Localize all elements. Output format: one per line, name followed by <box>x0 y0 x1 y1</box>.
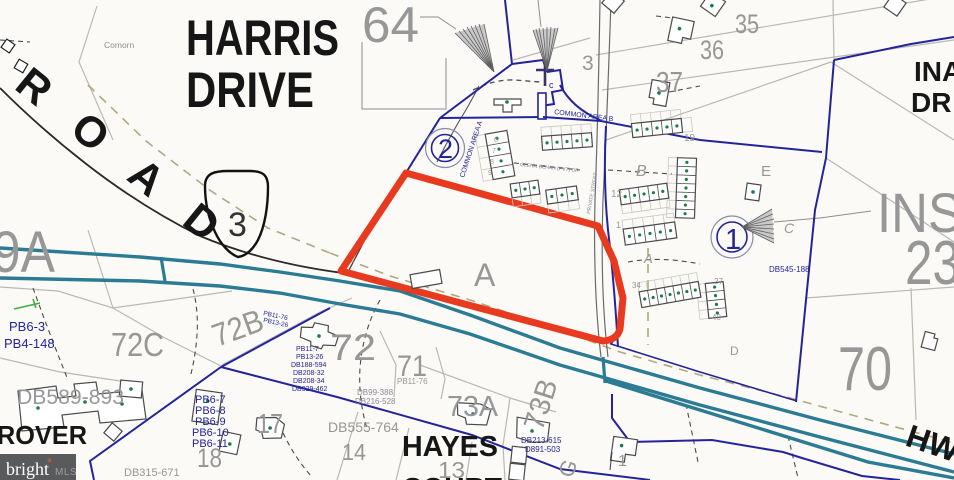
svg-text:6: 6 <box>494 137 498 144</box>
svg-text:72C: 72C <box>111 326 164 363</box>
svg-text:1: 1 <box>616 220 621 230</box>
svg-text:PB6-11: PB6-11 <box>192 438 228 450</box>
svg-text:1: 1 <box>618 453 627 470</box>
svg-text:34: 34 <box>632 281 641 290</box>
svg-text:DB545-188: DB545-188 <box>769 265 810 274</box>
svg-text:DR: DR <box>911 87 951 118</box>
svg-text:DRIVE: DRIVE <box>186 62 314 118</box>
svg-text:1: 1 <box>725 224 741 256</box>
svg-text:19: 19 <box>684 133 696 144</box>
svg-text:PB4-148: PB4-148 <box>4 336 55 351</box>
svg-text:PB11-76: PB11-76 <box>397 377 428 386</box>
svg-text:64: 64 <box>362 0 419 53</box>
svg-text:A: A <box>474 257 496 293</box>
svg-text:E: E <box>761 163 771 180</box>
svg-text:40: 40 <box>712 313 721 322</box>
svg-text:Comorn: Comorn <box>104 40 135 50</box>
svg-text:D: D <box>730 344 739 358</box>
svg-text:DB589-893: DB589-893 <box>17 386 124 409</box>
svg-text:bright: bright <box>6 459 49 479</box>
svg-text:ROVER: ROVER <box>0 420 87 450</box>
svg-text:17: 17 <box>257 408 283 439</box>
svg-text:PB6-3: PB6-3 <box>9 319 45 334</box>
svg-text:8: 8 <box>490 159 494 166</box>
svg-text:*: * <box>47 455 52 470</box>
svg-text:37: 37 <box>656 67 683 99</box>
svg-text:72: 72 <box>330 327 376 368</box>
svg-text:27: 27 <box>714 277 723 286</box>
svg-text:DB329-462: DB329-462 <box>292 386 328 393</box>
svg-text:7: 7 <box>492 148 496 155</box>
svg-text:D891-503: D891-503 <box>525 445 561 454</box>
svg-text:INA: INA <box>914 56 954 87</box>
svg-text:COURT: COURT <box>402 473 502 480</box>
svg-text:70: 70 <box>838 335 892 404</box>
svg-text:c: c <box>549 80 554 90</box>
svg-text:B: B <box>636 163 647 180</box>
svg-text:DB188-594: DB188-594 <box>291 362 327 369</box>
svg-text:C: C <box>784 220 795 236</box>
svg-text:MLS: MLS <box>55 467 77 478</box>
svg-text:3: 3 <box>582 52 594 75</box>
svg-text:9A: 9A <box>0 220 55 285</box>
svg-text:PB13-26: PB13-26 <box>296 354 323 361</box>
svg-text:A: A <box>643 251 653 266</box>
svg-text:DB555-764: DB555-764 <box>328 419 399 435</box>
svg-text:36: 36 <box>700 35 724 65</box>
svg-text:DB216-528: DB216-528 <box>355 397 396 406</box>
svg-text:12: 12 <box>611 189 623 200</box>
svg-text:DB208-34: DB208-34 <box>293 378 325 385</box>
svg-text:9: 9 <box>488 170 492 177</box>
svg-text:DB99-388: DB99-388 <box>357 388 394 397</box>
svg-text:PB11-7: PB11-7 <box>296 346 319 353</box>
svg-text:HARRIS: HARRIS <box>186 10 339 66</box>
svg-text:3: 3 <box>228 206 247 244</box>
svg-text:14: 14 <box>342 439 366 465</box>
svg-text:DB315-671: DB315-671 <box>124 467 180 479</box>
svg-text:DB208-32: DB208-32 <box>293 370 325 377</box>
svg-text:23: 23 <box>905 229 954 298</box>
svg-text:2: 2 <box>438 134 453 164</box>
svg-text:DB213-615: DB213-615 <box>521 436 562 445</box>
svg-text:35: 35 <box>735 9 759 39</box>
svg-text:HAYES: HAYES <box>402 431 498 463</box>
svg-text:73A: 73A <box>447 391 499 423</box>
